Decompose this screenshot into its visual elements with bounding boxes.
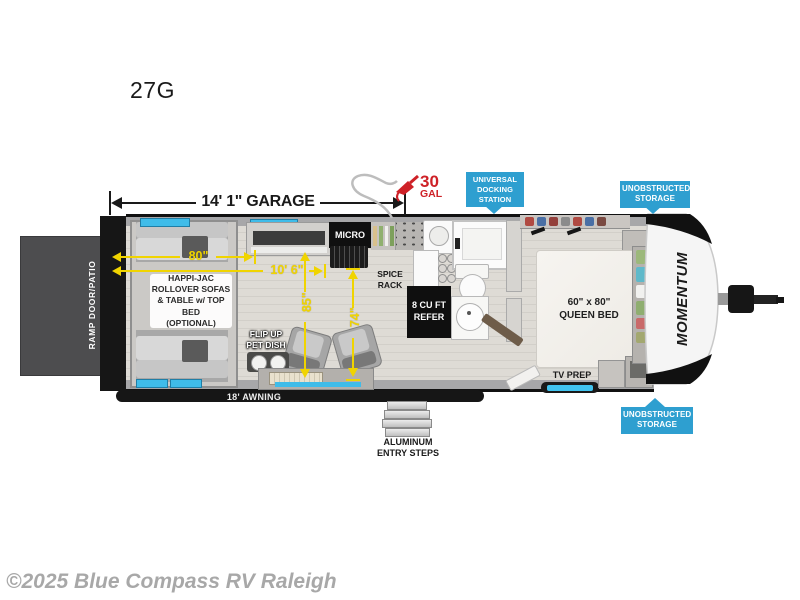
hanging-clothes [561,217,570,226]
stove [330,246,368,268]
awning-label: 18' AWNING [226,392,282,403]
pantry-bin-tan [373,226,377,246]
dim-10-6-label: 10' 6" [264,264,310,277]
window-garage-bottom-2 [170,379,202,388]
dim-85-label: 85" [301,287,314,317]
microwave: MICRO [329,222,371,248]
fuel-nozzle-icon [396,181,414,195]
entry-steps-label: ALUMINUM ENTRY STEPS [376,437,440,460]
badge-storage-bottom-pointer [645,398,665,407]
fuel-nozzle-spout [410,176,418,183]
dim-80-label: 80" [181,250,216,263]
floorplan-page: 27G RAMP DOOR/PATIO HAPPI-JAC ROLLOVER S… [0,0,800,600]
entry-doorway [258,368,374,390]
sofa-bottom-table [182,340,208,362]
front-cap: MOMENTUM [620,206,790,392]
console-ledge [251,247,327,253]
sofa-bottom [136,330,228,382]
wardrobe [520,215,630,229]
tv-prep-label: TV PREP [550,370,594,381]
hanging-clothes [573,217,582,226]
tv-screen [547,385,593,391]
hanging-clothes [549,217,558,226]
pantry [371,222,395,250]
spice-jar [438,264,447,273]
step-tread [387,401,427,410]
badge-storage-top-pointer [643,205,663,214]
pantry-bin-white [385,226,388,246]
fuel-nozzle-trigger [397,192,399,201]
entry-steps [381,401,433,437]
sofa-callout-label: HAPPI-JAC ROLLOVER SOFAS & TABLE w/ TOP … [150,273,232,328]
step-tread [384,410,430,419]
model-title: 27G [130,76,175,105]
brand-logo: MOMENTUM [674,252,691,346]
entertainment-console [246,222,332,256]
kitchen-drawers [395,222,424,250]
bathroom-wall-upper [506,220,522,292]
window-garage-top [140,218,190,227]
fuel-hose [352,175,397,218]
tv-prep-marker [541,382,599,393]
pantry-bin-green1 [379,226,383,246]
hanging-clothes [597,217,606,226]
copyright-watermark: ©2025 Blue Compass RV Raleigh [6,570,337,594]
badge-unobstructed-storage-top: UNOBSTRUCTED STORAGE [620,181,690,208]
refrigerator: 8 CU FT REFER [407,286,451,338]
shower [452,220,512,270]
refrigerator-label: 8 CU FT REFER [412,300,446,323]
shower-pan [462,228,502,260]
queen-bed-label: 60" x 80" QUEEN BED [559,296,618,322]
fuel-unit: GAL [420,188,450,201]
badge-docking-pointer [484,205,504,214]
dim-74-label: 74" [349,302,362,332]
hitch-coupler [728,285,754,313]
sofa-callout-box: HAPPI-JAC ROLLOVER SOFAS & TABLE w/ TOP … [150,274,232,328]
spice-rack-label: SPICE RACK [368,269,412,290]
ramp-door-label: RAMP DOOR/PATIO [87,248,99,362]
hanging-clothes [525,217,534,226]
kitchen-counter [413,250,439,288]
step-tread [382,419,432,428]
microwave-label: MICRO [335,230,365,240]
hitch-arm [754,295,778,304]
hitch-tip [776,297,784,303]
spice-jar [438,254,447,263]
badge-universal-docking-station: UNIVERSAL DOCKING STATION [466,172,524,207]
garage-arrow-right [393,197,404,209]
shower-fixture [455,238,460,249]
hanging-clothes [537,217,546,226]
pantry-bin-green2 [390,226,394,246]
kitchen-sink-counter [423,220,454,254]
badge-unobstructed-storage-bottom: UNOBSTRUCTED STORAGE [621,407,693,434]
hitch-post [718,293,728,305]
vanity-faucet [467,311,471,315]
hanging-clothes [585,217,594,226]
sofa-bottom-back [136,360,228,378]
kitchen-sink [429,226,449,246]
vanity-basin [456,303,484,331]
entry-window [275,382,361,387]
garage-arrow-left [111,197,122,209]
spice-jar [438,274,447,283]
step-tread [385,428,430,437]
window-garage-bottom-1 [136,379,168,388]
pet-dish-label: FLIP UP PET DISH [238,329,294,350]
garage-dimension-label: 14' 1" GARAGE [196,192,320,212]
console-shelf [253,231,325,245]
